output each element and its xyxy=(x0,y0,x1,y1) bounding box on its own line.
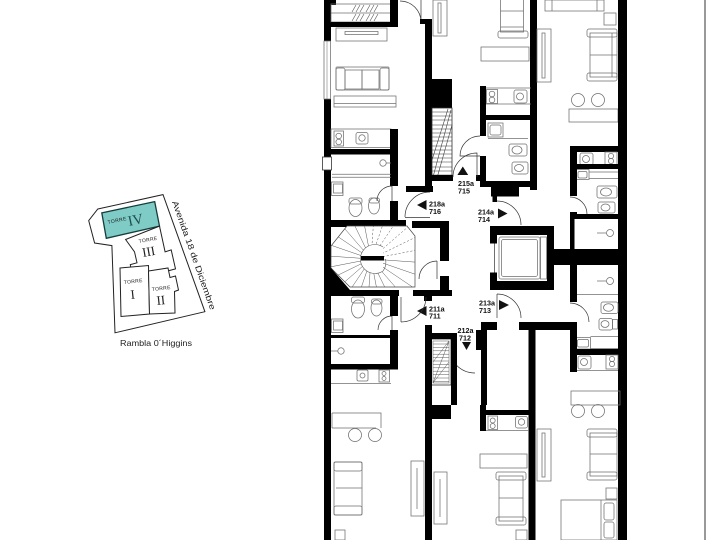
svg-text:713: 713 xyxy=(479,306,491,315)
svg-text:714: 714 xyxy=(478,215,490,224)
svg-text:III: III xyxy=(141,243,156,260)
svg-text:712: 712 xyxy=(459,334,471,343)
svg-text:Rambla 0´Higgins: Rambla 0´Higgins xyxy=(120,338,192,348)
svg-text:715: 715 xyxy=(458,187,470,196)
svg-text:II: II xyxy=(156,292,166,308)
svg-text:711: 711 xyxy=(429,312,441,321)
svg-text:716: 716 xyxy=(429,207,441,216)
